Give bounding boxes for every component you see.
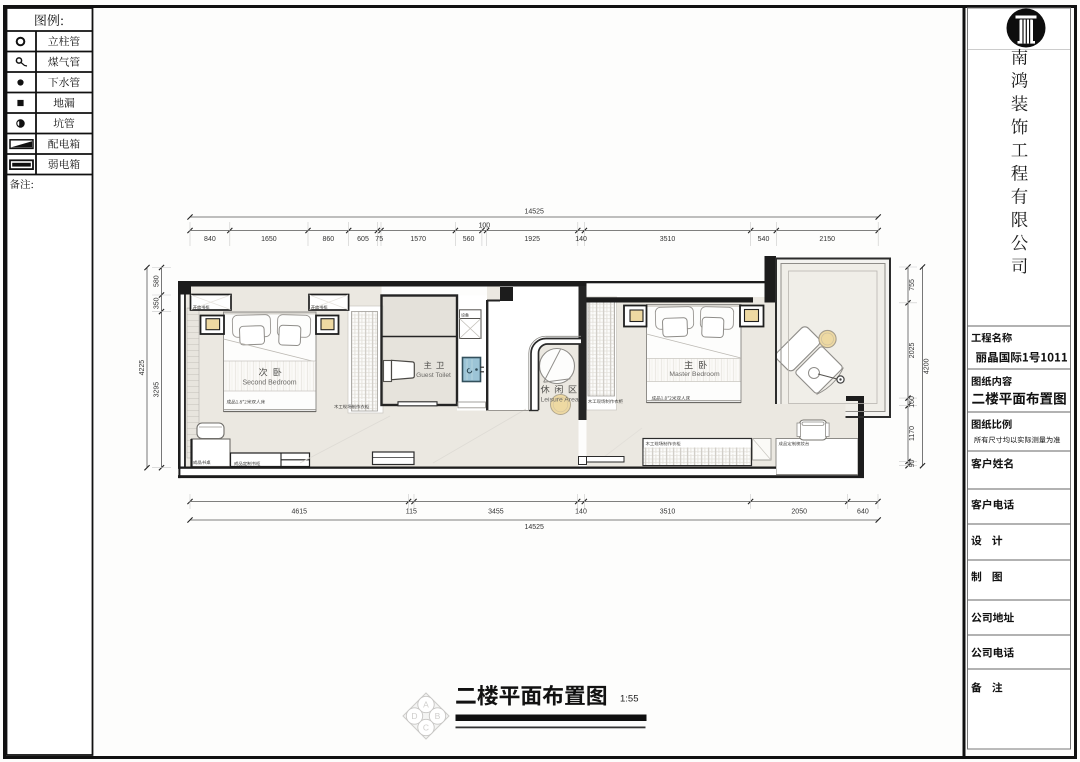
svg-text:2150: 2150: [819, 236, 835, 243]
svg-text:160: 160: [909, 396, 916, 408]
svg-text:100: 100: [478, 223, 490, 230]
svg-text:540: 540: [758, 236, 770, 243]
svg-text:3455: 3455: [488, 509, 504, 516]
svg-text:605: 605: [357, 236, 369, 243]
svg-text:2025: 2025: [909, 343, 916, 359]
svg-text:B: B: [435, 711, 441, 721]
svg-text:560: 560: [463, 236, 475, 243]
svg-text:90: 90: [909, 460, 916, 468]
svg-text:1:55: 1:55: [620, 694, 639, 705]
svg-text:860: 860: [322, 236, 334, 243]
svg-text:14525: 14525: [524, 209, 544, 216]
svg-text:140: 140: [575, 236, 587, 243]
svg-text:580: 580: [154, 275, 161, 287]
svg-text:D: D: [411, 711, 417, 721]
svg-text:350: 350: [154, 297, 161, 309]
svg-text:140: 140: [575, 509, 587, 516]
svg-text:Guest Toilet: Guest Toilet: [416, 372, 451, 379]
svg-text:1570: 1570: [410, 236, 426, 243]
svg-text:75: 75: [375, 236, 383, 243]
svg-text:1925: 1925: [524, 236, 540, 243]
svg-text:4225: 4225: [139, 360, 146, 376]
svg-text:A: A: [423, 700, 429, 710]
svg-text:640: 640: [857, 509, 869, 516]
svg-text:14525: 14525: [524, 524, 544, 531]
svg-text:Master Bedroom: Master Bedroom: [669, 371, 720, 378]
svg-text:Second Bedroom: Second Bedroom: [242, 380, 296, 387]
svg-text:C: C: [423, 723, 429, 733]
svg-text:755: 755: [909, 279, 916, 291]
svg-text:3295: 3295: [154, 382, 161, 398]
svg-text:Leisure Area: Leisure Area: [541, 396, 579, 403]
svg-text:4200: 4200: [924, 358, 931, 374]
svg-text:2050: 2050: [791, 509, 807, 516]
svg-text:4615: 4615: [292, 509, 308, 516]
svg-text:1170: 1170: [909, 426, 916, 441]
svg-text:1650: 1650: [261, 236, 277, 243]
svg-text:3510: 3510: [660, 236, 676, 243]
svg-text:115: 115: [406, 509, 417, 516]
svg-text:840: 840: [204, 236, 216, 243]
svg-text:3510: 3510: [660, 509, 676, 516]
